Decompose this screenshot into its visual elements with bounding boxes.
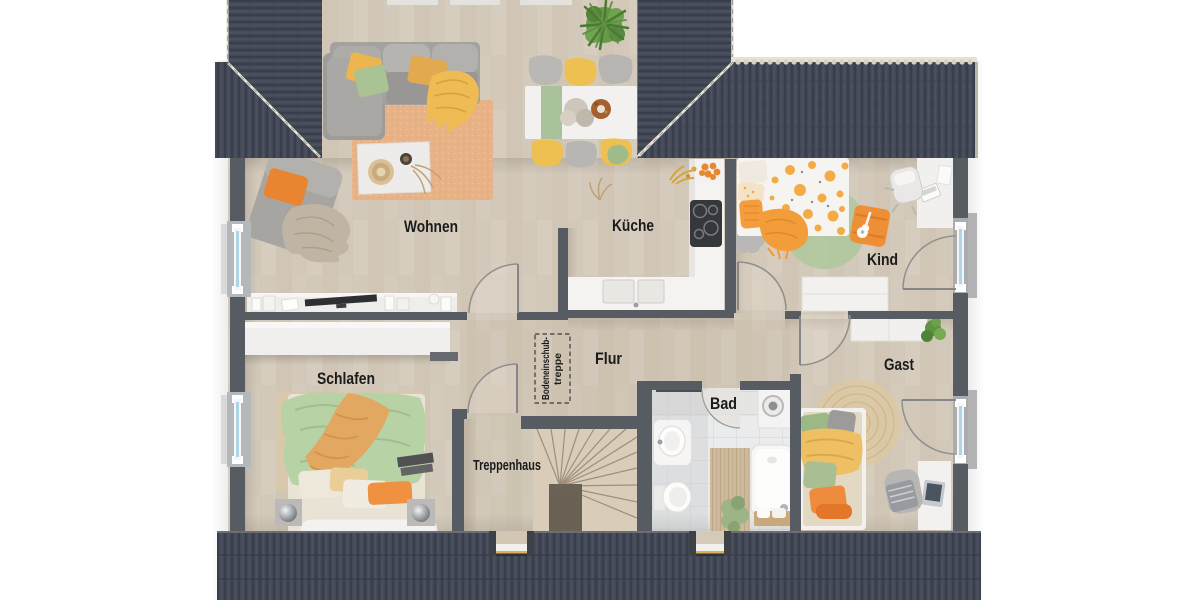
svg-text:Treppenhaus: Treppenhaus (473, 458, 541, 474)
svg-text:Wohnen: Wohnen (404, 217, 458, 236)
svg-text:Kind: Kind (867, 250, 898, 269)
svg-text:Flur: Flur (595, 349, 622, 368)
svg-text:Bodeneinschub-: Bodeneinschub- (540, 337, 552, 400)
svg-text:treppe: treppe (552, 353, 564, 385)
svg-text:Schlafen: Schlafen (317, 369, 375, 388)
svg-text:Küche: Küche (612, 216, 654, 235)
svg-text:Gast: Gast (884, 355, 914, 374)
svg-text:Bad: Bad (710, 394, 737, 413)
